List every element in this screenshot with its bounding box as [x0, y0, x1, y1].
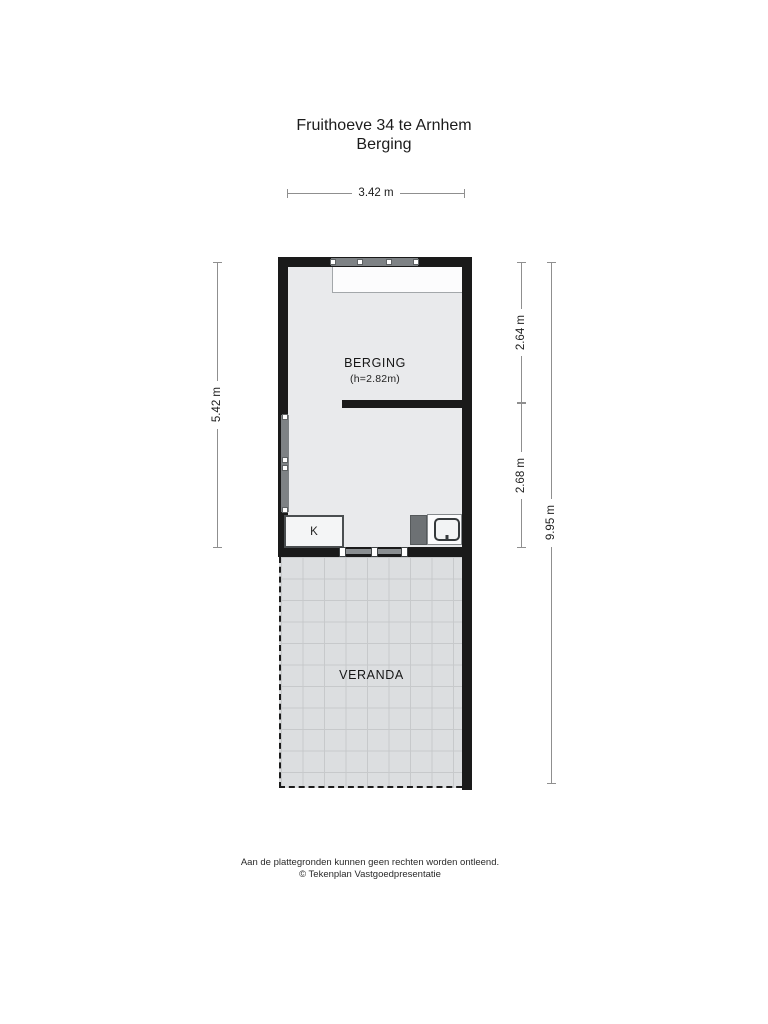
dimension-label: 9.95 m	[545, 499, 557, 546]
window-mullion	[282, 465, 288, 471]
closet-box: K	[284, 515, 344, 548]
dimension-line	[521, 404, 522, 452]
footer-disclaimer: Aan de plattegronden kunnen geen rechten…	[0, 857, 740, 881]
veranda-room-label: VERANDA	[281, 668, 462, 682]
interior-wall	[342, 400, 472, 408]
berging-height-note: (h=2.82m)	[288, 373, 462, 385]
dimension-tick	[464, 189, 465, 198]
dimension-line	[400, 193, 464, 194]
cabinet	[410, 515, 427, 545]
dimension-label: 3.42 m	[352, 187, 399, 199]
window-mullion	[386, 259, 392, 265]
address-title: Fruithoeve 34 te Arnhem	[0, 116, 768, 135]
page-title: Fruithoeve 34 te Arnhem Berging	[0, 116, 768, 154]
window-mullion	[282, 457, 288, 463]
dimension-tick	[213, 547, 222, 548]
floorplan-page: Fruithoeve 34 te Arnhem Berging 3.42 m 5…	[0, 0, 768, 1024]
dimension-line	[217, 263, 218, 381]
berging-room-label: BERGING	[288, 356, 462, 370]
dimension-line	[521, 356, 522, 402]
dimension-line	[521, 499, 522, 547]
dimension-label: 2.68 m	[515, 452, 527, 499]
window-mullion	[413, 259, 419, 265]
dimension-line	[217, 429, 218, 547]
dimension-right-total: 9.95 m	[545, 262, 557, 784]
dimension-label: 5.42 m	[211, 381, 223, 428]
window-mullion	[282, 507, 288, 513]
sink-icon	[434, 518, 460, 541]
dimension-tick	[547, 783, 556, 784]
veranda-right-wall	[462, 557, 472, 790]
dimension-tick	[517, 547, 526, 548]
closet-label: K	[310, 526, 318, 538]
dimension-line	[551, 547, 552, 783]
dimension-line	[521, 263, 522, 309]
door-threshold	[346, 549, 372, 554]
disclaimer-text: Aan de plattegronden kunnen geen rechten…	[0, 857, 740, 869]
window-mullion	[282, 414, 288, 420]
window-icon-top	[331, 258, 418, 266]
dimension-left-height: 5.42 m	[211, 262, 223, 548]
dimension-right-lower: 2.68 m	[515, 403, 527, 548]
dimension-label: 2.64 m	[515, 309, 527, 356]
dimension-right-upper: 2.64 m	[515, 262, 527, 403]
dimension-line	[551, 263, 552, 499]
dimension-line	[288, 193, 352, 194]
plan-subtitle: Berging	[0, 135, 768, 154]
copyright-text: © Tekenplan Vastgoedpresentatie	[0, 869, 740, 881]
window-mullion	[330, 259, 336, 265]
window-mullion	[357, 259, 363, 265]
window-icon-left	[281, 415, 289, 512]
dimension-top-width: 3.42 m	[287, 187, 465, 199]
door-threshold	[378, 549, 402, 554]
